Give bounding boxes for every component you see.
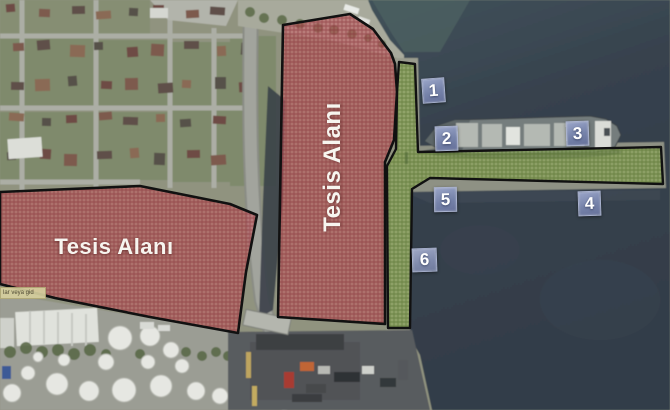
berth-marker-1: 1 <box>421 77 446 104</box>
dock-building <box>256 334 344 350</box>
satellite-map: Tesis Alanı Tesis Alanı 1 2 3 4 5 6 lar … <box>0 0 670 410</box>
house-roof <box>99 111 113 120</box>
ship-deck-house <box>506 127 520 145</box>
house-roof <box>210 6 226 15</box>
house-roof <box>151 44 165 57</box>
house-roof <box>68 76 78 87</box>
house-roof <box>13 43 24 51</box>
house-roof <box>64 154 77 166</box>
small-building <box>0 318 14 348</box>
house-roof <box>213 116 226 125</box>
house-roof <box>70 45 85 58</box>
sea-patch <box>440 225 520 275</box>
house-roof <box>37 39 51 50</box>
house-roof <box>94 42 103 50</box>
ship-funnel <box>604 128 610 136</box>
house-roof <box>6 4 16 13</box>
crane <box>246 352 251 378</box>
house-roof <box>217 46 227 56</box>
house-roof <box>156 114 165 122</box>
note-label: lar veya gid <box>0 287 46 299</box>
berth-marker-6: 6 <box>412 248 438 273</box>
house-roof <box>39 9 50 17</box>
house-roof <box>154 153 165 165</box>
white-roof-building <box>150 8 168 18</box>
map-artwork <box>0 0 670 410</box>
sea-patch <box>540 260 660 340</box>
house-roof <box>187 150 200 158</box>
house-roof <box>180 119 192 128</box>
house-roof <box>215 77 226 89</box>
house-roof <box>97 151 112 160</box>
house-roof <box>182 80 191 88</box>
berth-marker-2: 2 <box>435 126 459 152</box>
blue-container <box>2 366 11 379</box>
white-roof-building <box>7 137 42 159</box>
house-roof <box>186 10 199 19</box>
house-roof <box>127 47 139 58</box>
house-roof <box>129 8 138 16</box>
truck <box>158 325 170 331</box>
house-roof <box>101 81 112 89</box>
crane <box>252 386 257 406</box>
house-roof <box>11 82 24 90</box>
house-roof <box>211 154 227 165</box>
house-roof <box>72 6 85 14</box>
house-roof <box>66 115 77 123</box>
truck <box>140 322 154 329</box>
house-roof <box>9 112 25 121</box>
house-roof <box>42 118 51 126</box>
berth-marker-3: 3 <box>566 121 590 147</box>
facility-area-center-overlay <box>278 14 397 324</box>
house-roof <box>184 41 199 49</box>
house-roof <box>35 79 50 92</box>
house-roof <box>158 82 174 93</box>
berth-marker-4: 4 <box>578 191 602 217</box>
house-roof <box>123 117 138 126</box>
house-roof <box>130 148 140 159</box>
berth-marker-5: 5 <box>434 187 457 212</box>
house-roof <box>96 10 112 19</box>
house-roof <box>125 78 138 90</box>
